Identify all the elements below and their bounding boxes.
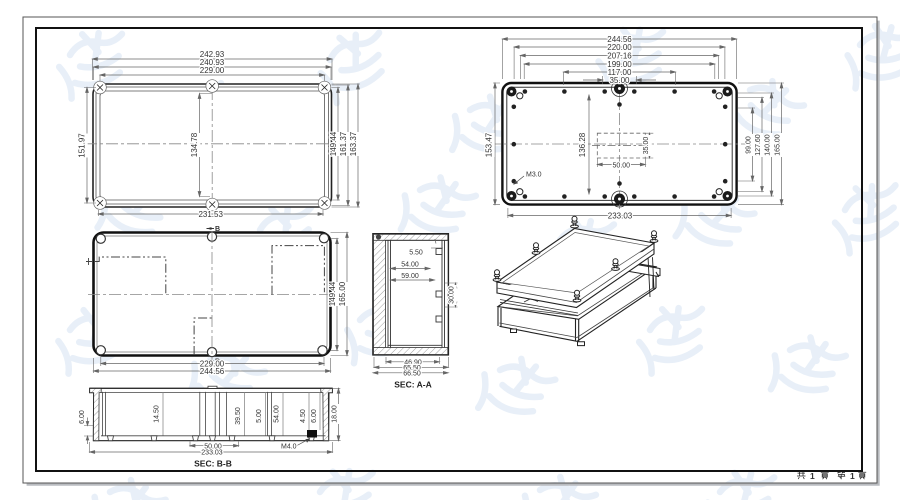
svg-text:18.00: 18.00 xyxy=(332,405,339,423)
svg-text:SEC: A-A: SEC: A-A xyxy=(394,380,431,390)
svg-text:5.50: 5.50 xyxy=(409,250,423,257)
svg-text:B: B xyxy=(215,226,220,233)
svg-text:5.00: 5.00 xyxy=(256,409,263,423)
svg-text:161.37: 161.37 xyxy=(339,131,348,156)
svg-text:149.44: 149.44 xyxy=(329,131,338,156)
svg-text:50.00: 50.00 xyxy=(613,162,631,169)
svg-text:149.44: 149.44 xyxy=(328,281,337,306)
svg-text:4.50: 4.50 xyxy=(300,409,307,423)
svg-text:6.00: 6.00 xyxy=(311,409,318,423)
svg-text:136.28: 136.28 xyxy=(578,132,587,157)
svg-text:231.53: 231.53 xyxy=(198,210,223,219)
svg-text:35.00: 35.00 xyxy=(643,137,650,155)
svg-text:244.56: 244.56 xyxy=(200,367,225,376)
svg-text:99.00: 99.00 xyxy=(746,136,753,154)
svg-text:SEC: B-B: SEC: B-B xyxy=(194,459,232,469)
svg-text:54.00: 54.00 xyxy=(274,405,281,423)
svg-text:153.47: 153.47 xyxy=(485,132,494,157)
svg-text:233.03: 233.03 xyxy=(201,450,223,457)
svg-text:14.50: 14.50 xyxy=(154,405,161,423)
svg-text:233.03: 233.03 xyxy=(608,211,633,220)
svg-text:6.00: 6.00 xyxy=(79,410,86,424)
svg-text:59.00: 59.00 xyxy=(401,273,419,280)
svg-text:M4.0: M4.0 xyxy=(281,443,297,450)
svg-text:163.37: 163.37 xyxy=(349,131,358,156)
svg-text:229.00: 229.00 xyxy=(200,66,225,75)
svg-text:30.00: 30.00 xyxy=(449,286,456,304)
svg-text:1: 1 xyxy=(810,471,815,481)
svg-text:165.00: 165.00 xyxy=(338,281,347,306)
svg-text:151.97: 151.97 xyxy=(78,133,87,158)
svg-text:1: 1 xyxy=(850,471,855,481)
svg-text:54.00: 54.00 xyxy=(401,262,419,269)
svg-text:165.00: 165.00 xyxy=(775,134,782,156)
svg-text:39.50: 39.50 xyxy=(235,407,242,425)
svg-text:M3.0: M3.0 xyxy=(526,172,542,179)
svg-text:127.60: 127.60 xyxy=(755,134,762,156)
svg-text:134.78: 134.78 xyxy=(190,132,199,157)
svg-text:66.50: 66.50 xyxy=(403,370,421,377)
svg-text:35.00: 35.00 xyxy=(609,76,630,85)
svg-text:140.00: 140.00 xyxy=(765,134,772,156)
